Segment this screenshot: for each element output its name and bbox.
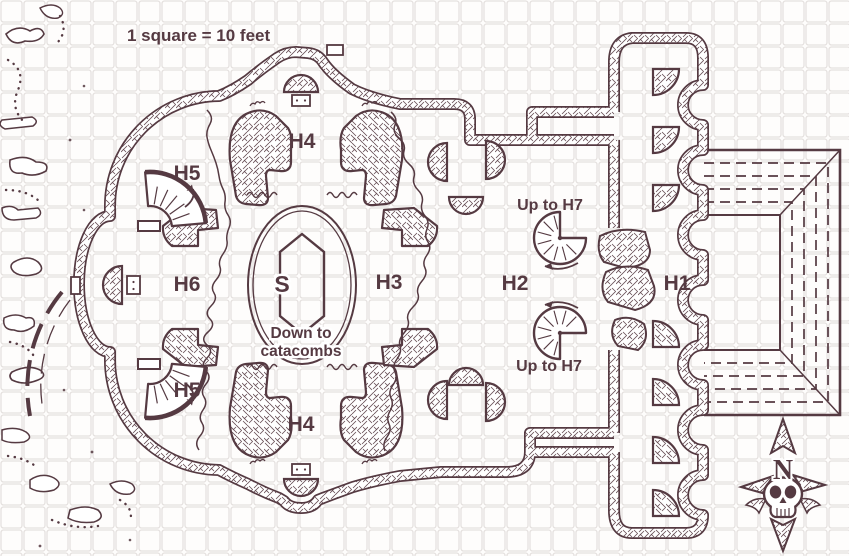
altar-icon [292, 464, 310, 475]
up-to-h7-bottom-label: Up to H7 [516, 358, 582, 375]
dungeon-map-page: S Down to catacombs N 1 square = 10 feet… [0, 0, 849, 556]
dungeon-map: S Down to catacombs N 1 square = 10 feet… [0, 0, 849, 556]
down-to-catacombs-line1: Down to [270, 325, 331, 342]
room-label-h4-top: H4 [289, 130, 316, 153]
altar-icon [292, 95, 310, 106]
room-label-h2: H2 [502, 272, 529, 295]
up-to-h7-top-label: Up to H7 [517, 197, 583, 214]
down-to-catacombs-line2: catacombs [261, 343, 342, 360]
room-label-h3: H3 [376, 271, 403, 294]
door-icon [71, 277, 80, 294]
room-label-h6: H6 [174, 273, 201, 296]
altar-icon [127, 276, 140, 294]
scale-label: 1 square = 10 feet [127, 26, 271, 45]
room-label-h1: H1 [664, 272, 691, 295]
room-label-h4-bottom: H4 [288, 413, 315, 436]
room-label-h5-top: H5 [174, 162, 201, 185]
door-icon [327, 45, 343, 55]
north-label: N [773, 455, 793, 486]
stairs-marker-label: S [274, 271, 289, 297]
room-label-h5-bottom: H5 [174, 379, 201, 402]
